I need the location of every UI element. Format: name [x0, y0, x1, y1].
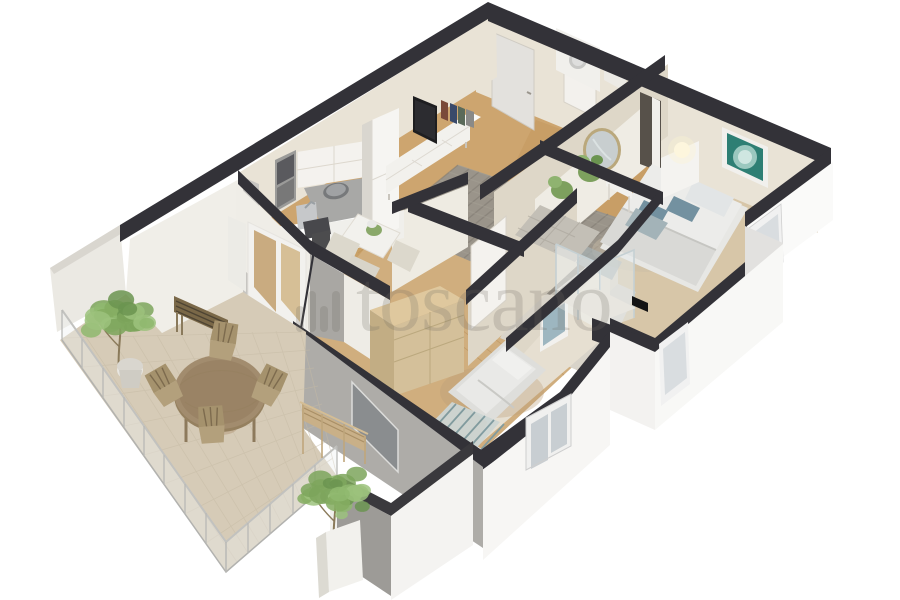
- svg-text:toscano: toscano: [356, 253, 612, 349]
